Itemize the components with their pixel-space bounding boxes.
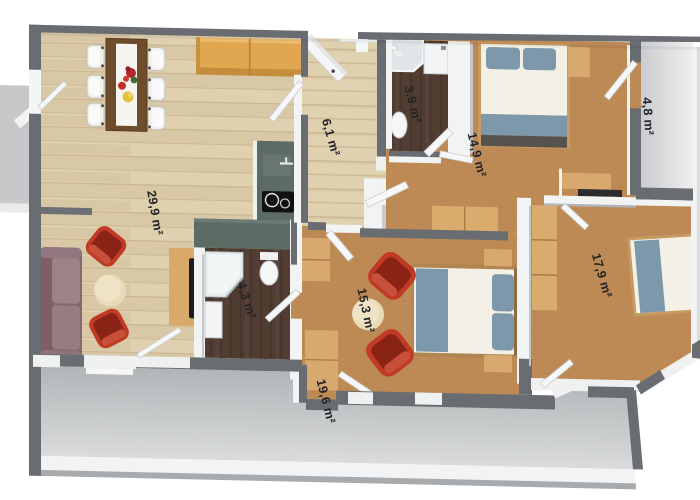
svg-text:4,8 m²: 4,8 m² (640, 97, 657, 136)
